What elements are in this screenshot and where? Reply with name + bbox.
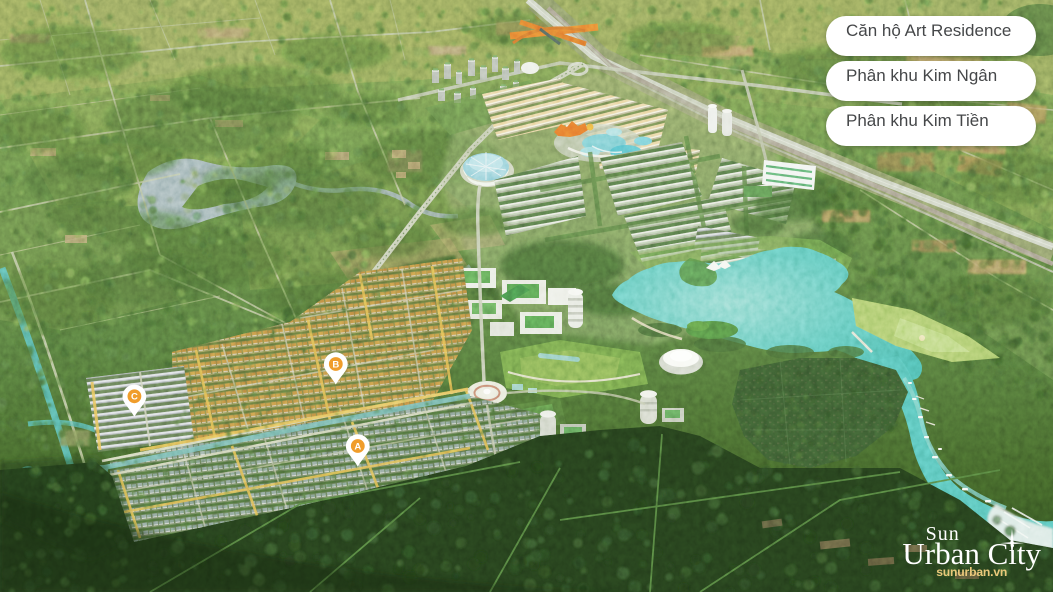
- svg-text:C: C: [131, 392, 138, 403]
- svg-text:A: A: [354, 441, 361, 452]
- svg-text:B: B: [332, 359, 339, 370]
